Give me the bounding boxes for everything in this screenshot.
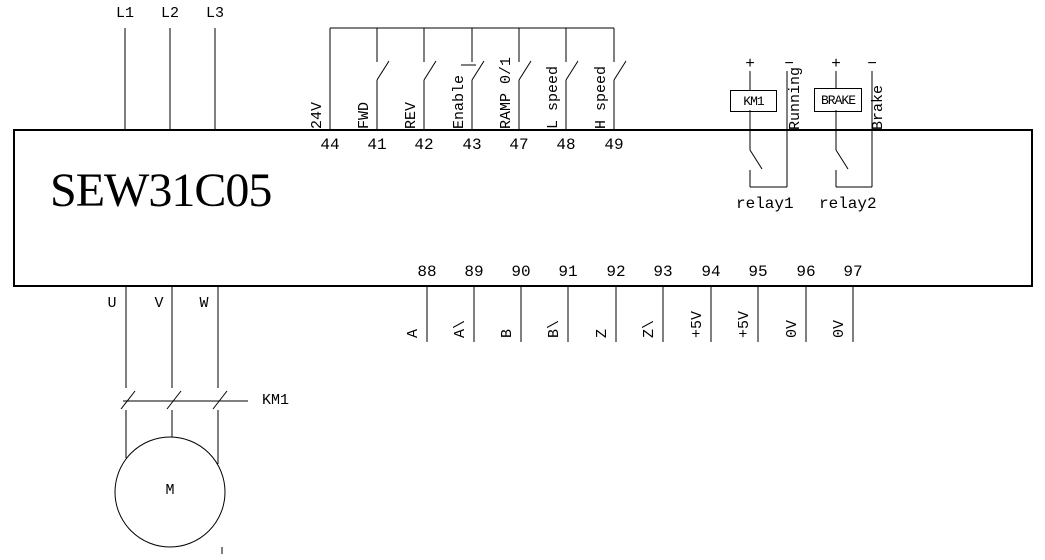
terminal-number-88: 88 bbox=[410, 264, 444, 280]
relay2-name: relay2 bbox=[819, 196, 877, 212]
power-line-label-l2: L2 bbox=[161, 6, 179, 22]
terminal-number-90: 90 bbox=[504, 264, 538, 280]
encoder-label-z-inv: Z\ bbox=[642, 320, 658, 338]
encoder-label-5v-1: +5V bbox=[690, 311, 706, 338]
terminal-number-93: 93 bbox=[646, 264, 680, 280]
running-signal-label: Running bbox=[788, 67, 804, 130]
terminal-number-42: 42 bbox=[407, 137, 441, 153]
terminal-label-24v: 24V bbox=[310, 102, 326, 129]
encoder-label-0v-1: 0V bbox=[785, 320, 801, 338]
terminal-label-rev: REV bbox=[404, 102, 420, 129]
terminal-number-95: 95 bbox=[741, 264, 775, 280]
km1-coil-label: KM1 bbox=[743, 94, 763, 109]
terminal-number-89: 89 bbox=[457, 264, 491, 280]
encoder-label-a: A bbox=[406, 329, 422, 338]
terminal-label-fwd: FWD bbox=[357, 102, 373, 129]
terminal-number-96: 96 bbox=[789, 264, 823, 280]
terminal-number-44: 44 bbox=[313, 137, 347, 153]
power-lines bbox=[125, 28, 215, 130]
terminal-number-48: 48 bbox=[549, 137, 583, 153]
device-model: SEW31C05 bbox=[50, 183, 271, 199]
terminal-label-enable: Enable bbox=[452, 75, 468, 129]
brake-coil-box: BRAKE bbox=[814, 88, 862, 112]
relay1-name: relay1 bbox=[736, 196, 794, 212]
motor-phase-lines bbox=[123, 287, 248, 554]
phase-label-v: V bbox=[151, 296, 167, 312]
encoder-label-b: B bbox=[500, 329, 516, 338]
terminal-label-ramp: RAMP 0/1 bbox=[499, 57, 515, 129]
contactor-label: KM1 bbox=[262, 393, 289, 409]
phase-label-w: W bbox=[196, 296, 212, 312]
brake-signal-label: Brake bbox=[871, 85, 887, 130]
terminal-label-hspeed: H speed bbox=[594, 66, 610, 129]
wiring-diagram: SEW31C05 L1 L2 L3 44 41 42 43 47 48 49 2… bbox=[0, 0, 1045, 560]
terminal-number-47: 47 bbox=[502, 137, 536, 153]
terminal-number-49: 49 bbox=[597, 137, 631, 153]
contactor-blades bbox=[121, 391, 227, 409]
terminal-label-lspeed: L speed bbox=[546, 66, 562, 129]
encoder-label-a-inv: A\ bbox=[453, 320, 469, 338]
terminal-number-97: 97 bbox=[836, 264, 870, 280]
encoder-label-5v-2: +5V bbox=[737, 311, 753, 338]
plus-sign-relay2: + bbox=[829, 56, 843, 72]
terminal-number-94: 94 bbox=[694, 264, 728, 280]
power-line-label-l3: L3 bbox=[206, 6, 224, 22]
km1-coil-box: KM1 bbox=[730, 90, 777, 112]
phase-label-u: U bbox=[104, 296, 120, 312]
terminal-number-91: 91 bbox=[551, 264, 585, 280]
terminal-number-92: 92 bbox=[599, 264, 633, 280]
encoder-label-z: Z bbox=[595, 329, 611, 338]
terminal-number-43: 43 bbox=[455, 137, 489, 153]
motor-label: M bbox=[162, 483, 178, 499]
minus-sign-relay2: − bbox=[865, 56, 879, 72]
encoder-label-b-inv: B\ bbox=[547, 320, 563, 338]
power-line-label-l1: L1 bbox=[116, 6, 134, 22]
plus-sign-relay1: + bbox=[743, 56, 757, 72]
terminal-number-41: 41 bbox=[360, 137, 394, 153]
brake-coil-label: BRAKE bbox=[821, 93, 855, 108]
encoder-label-0v-2: 0V bbox=[832, 320, 848, 338]
